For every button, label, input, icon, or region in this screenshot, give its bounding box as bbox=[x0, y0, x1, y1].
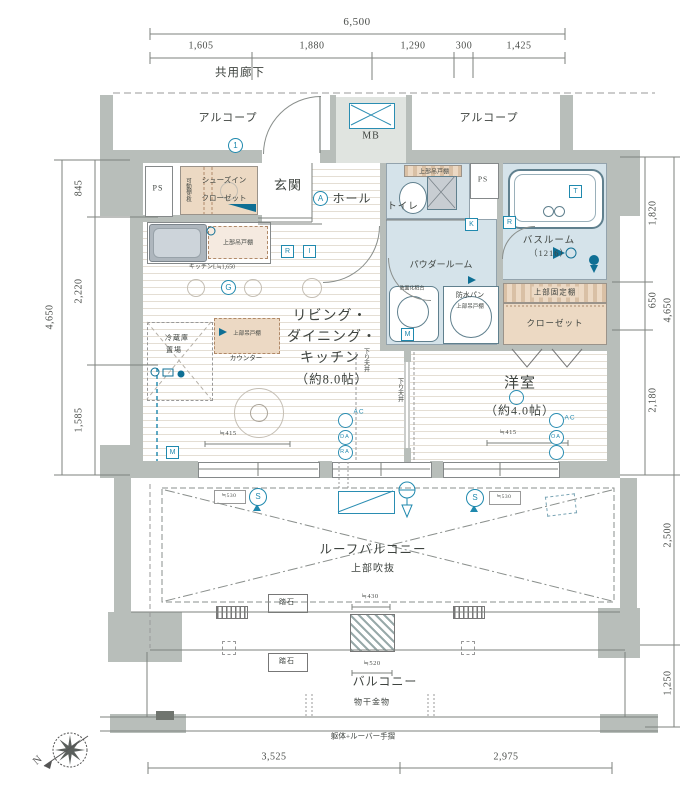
label-ps-left: PS bbox=[153, 184, 164, 193]
label-bath-2: （1216） bbox=[529, 247, 569, 259]
dim-left-3: 1,585 bbox=[74, 408, 85, 433]
rail-cap-left bbox=[110, 714, 186, 733]
label-bedroom-1: 洋室 bbox=[504, 372, 536, 393]
mark-circle-s1: S bbox=[249, 488, 267, 506]
kitchen-sink bbox=[153, 228, 201, 258]
drain-box-right bbox=[461, 641, 475, 655]
mark-circle-a: A bbox=[313, 191, 328, 206]
label-balcony: バルコニー bbox=[353, 673, 418, 690]
mark-circle-s2: S bbox=[466, 489, 484, 507]
upper-floor-outline bbox=[545, 493, 577, 517]
wall-sill-2 bbox=[318, 461, 332, 478]
label-north: N bbox=[31, 753, 46, 768]
label-fridge-2: 置場 bbox=[166, 345, 182, 355]
label-powder: パウダールーム bbox=[410, 258, 473, 271]
label-fixed-shelf: 上部固定棚 bbox=[532, 287, 579, 298]
wall-mb-left bbox=[330, 95, 336, 163]
label-sic-2: クローゼット bbox=[202, 193, 247, 204]
label-corridor: 共用廊下 bbox=[215, 64, 265, 80]
mark-box-k: K bbox=[465, 218, 478, 231]
pillar-top-left bbox=[100, 150, 143, 216]
dim-top-4: 300 bbox=[456, 41, 473, 52]
dim-win-left: ≒415 bbox=[219, 429, 236, 437]
mark-box-r1: R bbox=[281, 245, 294, 258]
dim-step-bottom: ≒520 bbox=[363, 659, 380, 667]
tub-faucet-1 bbox=[543, 206, 554, 217]
dim-step-top: ≒430 bbox=[361, 592, 378, 600]
dim-right-total: 4,650 bbox=[663, 298, 674, 323]
dim-bottom-2: 2,975 bbox=[494, 752, 519, 763]
wall-partition-stub-top bbox=[404, 348, 411, 362]
mark-box-i1: I bbox=[303, 245, 316, 258]
dim-bottom-1: 3,525 bbox=[262, 752, 287, 763]
label-counter-cabinet: 上部吊戸棚 bbox=[233, 329, 261, 337]
vanity-basin bbox=[397, 296, 429, 328]
label-ldk-4: （約8.0帖） bbox=[296, 369, 369, 388]
window-ldk-left bbox=[198, 462, 320, 478]
label-pan: 防水パン bbox=[456, 290, 484, 300]
dim-top-3: 1,290 bbox=[401, 41, 426, 52]
label-bedroom-2: （約4.0帖） bbox=[485, 402, 555, 419]
dim-left-2: 2,220 bbox=[74, 279, 85, 304]
window-bedroom bbox=[443, 462, 560, 478]
tub-faucet-2 bbox=[554, 206, 565, 217]
label-stepstone-1: 踏石 bbox=[279, 597, 295, 607]
wall-left bbox=[130, 216, 143, 445]
label-toilet: トイレ bbox=[387, 198, 419, 212]
mark-ac2: AC bbox=[564, 415, 575, 422]
label-bath-1: バスルーム bbox=[523, 232, 575, 246]
mb-box bbox=[349, 103, 395, 129]
label-roof-balcony: ルーフバルコニー bbox=[319, 539, 426, 558]
dim-left-1: 845 bbox=[74, 180, 85, 197]
downlight-3 bbox=[302, 278, 322, 298]
pillar-roof-bottom-right bbox=[598, 608, 640, 658]
downlight-1 bbox=[187, 279, 205, 297]
label-pan-cabinet: 上部吊戸棚 bbox=[456, 302, 484, 310]
vent-grille-right bbox=[453, 606, 485, 619]
window-ldk-right bbox=[332, 462, 432, 478]
dim-top-total: 6,500 bbox=[343, 16, 370, 28]
floor-plan-canvas: 6,500 1,605 1,880 1,290 300 1,425 4,650 … bbox=[0, 0, 680, 794]
dim-right-1: 1,820 bbox=[648, 201, 659, 226]
dim-top-1: 1,605 bbox=[189, 41, 214, 52]
label-alcove-left: アルコープ bbox=[198, 109, 257, 125]
toilet-tank bbox=[427, 176, 457, 210]
compass-icon bbox=[44, 733, 88, 769]
label-toilet-cabinet: 上部吊戸棚 bbox=[419, 167, 449, 176]
mark-box-m2: M bbox=[166, 446, 179, 459]
label-mb: MB bbox=[362, 131, 380, 142]
dim-gap-right: ≒530 bbox=[497, 494, 512, 500]
dim-right-2: 650 bbox=[648, 292, 659, 309]
wall-hall-wet bbox=[380, 163, 386, 350]
mark-circle-g: G bbox=[221, 280, 236, 295]
entry-door-arc bbox=[263, 96, 321, 154]
dim-right-3: 2,180 bbox=[648, 388, 659, 413]
wall-roof-right bbox=[620, 478, 637, 608]
ceiling-light-inner bbox=[250, 404, 268, 422]
label-closet: クローゼット bbox=[526, 317, 583, 329]
dim-kitchen-length: キッチンL≒1,650 bbox=[189, 262, 235, 271]
mark-circle-1: 1 bbox=[228, 138, 243, 153]
drain-box-left bbox=[222, 641, 236, 655]
pillar-top-right bbox=[607, 150, 640, 216]
wall-partition-stub-bottom bbox=[404, 448, 411, 462]
label-handrail: 躯体+ルーバー手摺 bbox=[331, 731, 395, 742]
label-ldk-1: リビング・ bbox=[293, 305, 368, 325]
label-stepstone-2: 踏石 bbox=[279, 656, 295, 666]
dim-top-2: 1,880 bbox=[300, 41, 325, 52]
wall-sill-4 bbox=[558, 461, 607, 478]
dim-right-roof: 2,500 bbox=[663, 523, 674, 548]
label-vanity: 洗面化粧台 bbox=[399, 285, 424, 292]
wall-top-right bbox=[412, 150, 620, 163]
rail-cap-right bbox=[600, 714, 658, 733]
mark-box-r2: R bbox=[503, 216, 516, 229]
mark-ra: RA bbox=[340, 449, 350, 455]
rail-block bbox=[156, 711, 174, 720]
vent-grille-left bbox=[216, 606, 248, 619]
vent-ldk-1 bbox=[338, 413, 353, 428]
mark-box-t: T bbox=[569, 185, 582, 198]
label-hall: ホール bbox=[332, 190, 371, 207]
label-kitchen-cabinet: 上部吊戸棚 bbox=[223, 238, 253, 247]
label-sic-1: シューズイン bbox=[202, 175, 247, 186]
vent-bedroom-3 bbox=[549, 445, 564, 460]
wall-sill-1 bbox=[143, 461, 198, 478]
label-ldk-3: キッチン bbox=[300, 347, 360, 367]
pillar-bottom-left bbox=[100, 445, 143, 478]
label-genkan: 玄関 bbox=[274, 175, 302, 194]
label-sic-shelf: 可動棚6枚 bbox=[184, 178, 192, 203]
label-ps-right: PS bbox=[478, 175, 488, 184]
mark-da: DA bbox=[340, 434, 350, 440]
mark-oa: OA bbox=[551, 434, 561, 440]
mark-ac1: AC bbox=[353, 409, 364, 416]
dim-right-balcony: 1,250 bbox=[663, 671, 674, 696]
wall-corridor-right bbox=[560, 95, 573, 150]
downlight-2 bbox=[244, 279, 262, 297]
dim-left-total: 4,650 bbox=[45, 305, 56, 330]
label-laundry-hardware: 物干金物 bbox=[354, 697, 390, 708]
skylight-box bbox=[338, 491, 395, 514]
label-down-ceiling-right: 下り天井 bbox=[396, 378, 405, 402]
hatched-step bbox=[350, 614, 395, 652]
pillar-roof-bottom-left bbox=[108, 612, 182, 662]
dim-win-right: ≒415 bbox=[499, 428, 516, 436]
mark-box-m1: M bbox=[401, 328, 414, 341]
wall-roof-left bbox=[114, 478, 131, 612]
label-down-ceiling-left: 下り天井 bbox=[362, 348, 371, 372]
label-alcove-right: アルコープ bbox=[459, 109, 518, 125]
label-void: 上部吹抜 bbox=[351, 560, 395, 575]
wall-wet-bottom bbox=[380, 345, 610, 351]
dim-gap-left: ≒530 bbox=[222, 493, 237, 499]
label-counter: カウンター bbox=[230, 352, 263, 362]
label-fridge-1: 冷蔵庫 bbox=[165, 333, 189, 343]
label-ldk-2: ダイニング・ bbox=[287, 326, 377, 346]
dim-top-5: 1,425 bbox=[507, 41, 532, 52]
